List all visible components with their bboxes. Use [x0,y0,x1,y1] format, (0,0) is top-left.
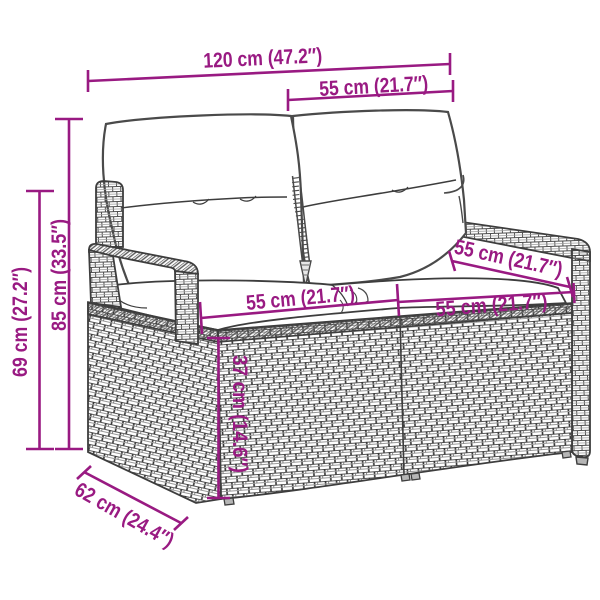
svg-text:69 cm (27.2″): 69 cm (27.2″) [9,267,32,377]
svg-text:37 cm (14.6″): 37 cm (14.6″) [228,355,251,473]
svg-text:85 cm (33.5″): 85 cm (33.5″) [48,219,71,331]
